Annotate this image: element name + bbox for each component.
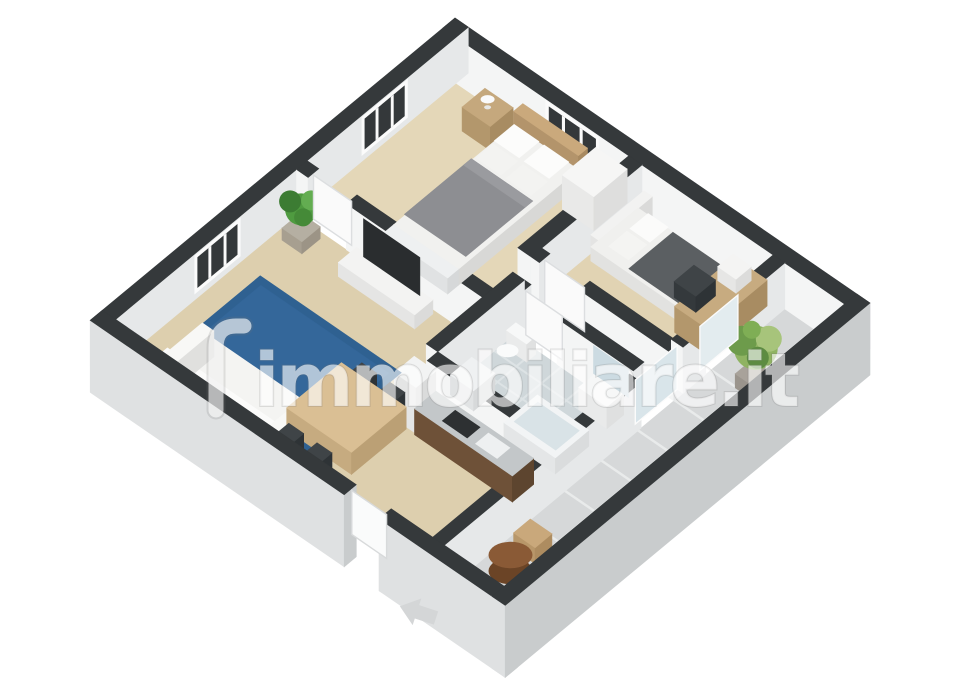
watermark: immobiliare.it xyxy=(216,326,799,424)
table-lamp-shade xyxy=(481,95,495,103)
window-master-left-mullion-2 xyxy=(376,108,378,140)
window-master-left-mullion-1 xyxy=(391,95,393,127)
window-living-left-mullion-2 xyxy=(209,246,211,278)
floorplan-3d-render: immobiliare.it xyxy=(0,0,960,679)
potted-plant-leaf-1 xyxy=(279,190,301,212)
table-lamp-base xyxy=(484,105,491,109)
floorplan-canvas: immobiliare.it xyxy=(0,0,960,679)
window-living-left-mullion-1 xyxy=(224,234,226,266)
watermark-text: immobiliare.it xyxy=(254,338,799,424)
round-table-top xyxy=(489,542,533,568)
potted-plant-leaf-3 xyxy=(294,208,312,226)
palm-plant-leaf-4 xyxy=(743,321,761,339)
wall-bottom-right-front xyxy=(492,596,505,677)
